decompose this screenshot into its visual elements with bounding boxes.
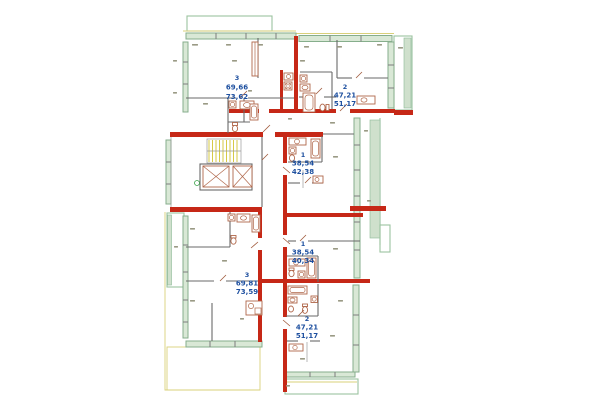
- floor-plan-canvas: 3 69,66 73,62 2 47,21 51,17 1 38,54 42,3…: [0, 0, 600, 400]
- area-total: 42,38: [292, 168, 314, 176]
- balcony-bottom: [285, 379, 358, 394]
- staircase: [207, 139, 241, 163]
- toilet-icon: [303, 304, 308, 307]
- apartment-label-bottom-left: 3 69,81 73,59: [236, 271, 258, 296]
- sink-icon: [289, 306, 294, 312]
- area-living: 47,21: [334, 92, 356, 100]
- area-living: 38,54: [292, 160, 314, 168]
- apartment-label-bottom: 2 47,21 51,17: [296, 315, 318, 340]
- toilet-icon: [326, 105, 329, 111]
- counter-icon: [313, 176, 323, 183]
- area-living: 47,21: [296, 324, 318, 332]
- window-band-bottom-left: [186, 341, 262, 347]
- rooms-count: 2: [343, 83, 348, 91]
- area-total: 73,59: [236, 288, 258, 296]
- vanity-icon: [237, 214, 250, 222]
- elevator-shaft-2: [233, 166, 252, 187]
- kitchen-top-left: [284, 73, 293, 90]
- kitchen-mid-upper: [313, 176, 323, 183]
- kitchen-top-right: [357, 96, 375, 104]
- apartment-label-top-right: 2 47,21 51,17: [334, 83, 356, 108]
- kitchen-bottom-left: [246, 301, 262, 315]
- window-band-top-right: [299, 36, 392, 42]
- window-band-stairwell: [166, 140, 171, 204]
- balcony-top-left: [187, 16, 272, 31]
- bathroom-bottom: [288, 286, 318, 313]
- utility-symbol: [195, 181, 200, 186]
- counter-icon: [289, 344, 303, 351]
- window-band-right-mid: [354, 118, 360, 278]
- elevator-shaft-1: [203, 166, 229, 187]
- window-band-top-left: [186, 33, 296, 39]
- apartment-label-top-left: 3 69,66 73,62: [226, 74, 248, 101]
- rooms-count: 1: [301, 240, 306, 248]
- apartment-label-mid-lower: 1 38,54 40,34: [292, 240, 314, 265]
- window-band-right-lower: [353, 285, 359, 372]
- rooms-count: 1: [301, 151, 306, 159]
- area-living: 69,66: [226, 84, 248, 92]
- kitchen-bottom: [289, 344, 303, 351]
- area-total: 51,17: [334, 100, 356, 108]
- area-total: 51,17: [296, 332, 318, 340]
- rooms-count: 3: [245, 271, 250, 279]
- window-band-left-lower: [183, 216, 188, 338]
- bathroom-top-right: [300, 75, 329, 112]
- bathroom-bottom-left: [228, 214, 260, 244]
- elevators: [195, 164, 253, 190]
- rooms-count: 3: [235, 74, 240, 82]
- counter-icon: [357, 96, 375, 104]
- stove-icon: [284, 82, 292, 90]
- rooms-count: 2: [305, 315, 310, 323]
- window-band-bottom: [285, 372, 355, 377]
- area-total: 73,62: [226, 93, 248, 101]
- window-band-left-upper: [183, 42, 188, 112]
- area-living: 38,54: [292, 249, 314, 257]
- area-living: 69,81: [236, 280, 258, 288]
- terrace-lower-left: [167, 347, 260, 390]
- floor-plan-page: 3 69,66 73,62 2 47,21 51,17 1 38,54 42,3…: [0, 0, 600, 400]
- sink-icon: [284, 73, 293, 80]
- area-total: 40,34: [292, 257, 314, 265]
- balcony-right-small: [380, 225, 390, 252]
- window-band-right-upper: [388, 42, 394, 108]
